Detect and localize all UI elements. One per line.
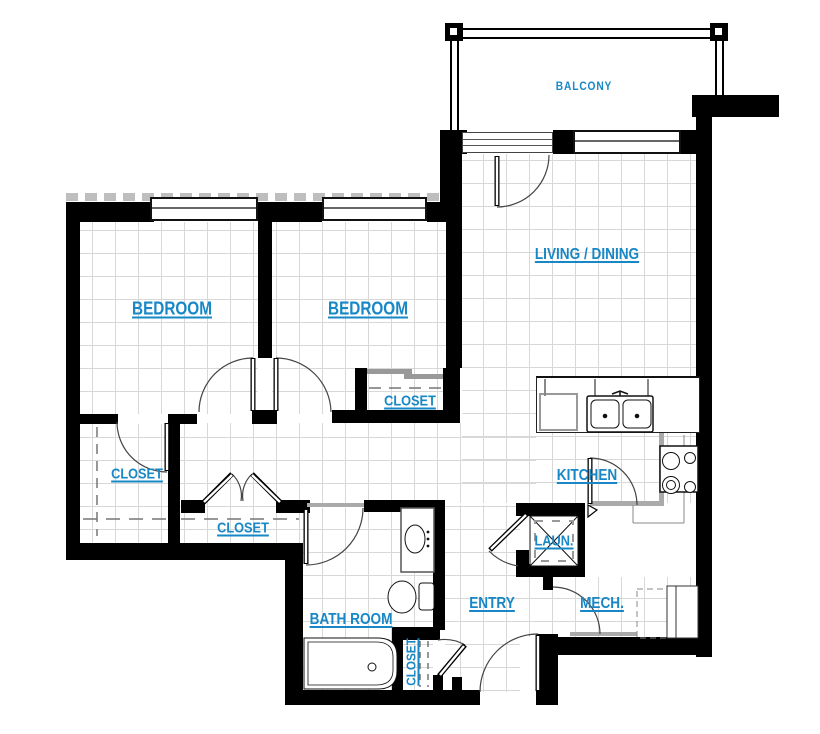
wall-segment [66,543,303,560]
balcony-post-left [445,23,463,41]
wall-segment [516,550,529,577]
wall-segment [258,202,322,222]
label-laundry: LAUN. [535,533,574,550]
wall-segment [258,222,272,358]
wall-segment [553,130,575,154]
label-kitchen: KITCHEN [557,467,617,485]
wall-segment [364,500,445,512]
balcony-railing-right [715,39,724,96]
window-living [573,130,681,154]
balcony-door-opening [462,132,553,153]
window-bedroom2 [322,197,427,221]
floor-plan: BALCONY LIVING / DINING BEDROOM BEDROOM … [0,0,820,734]
balcony-post-right [710,23,728,41]
label-bedroom-2: BEDROOM [328,299,408,320]
balcony-railing-left [450,39,459,132]
wall-segment [543,577,553,590]
label-entry: ENTRY [469,595,515,613]
wall-segment [332,410,460,423]
label-mech: MECH. [580,595,624,613]
wall-segment [285,560,303,692]
label-bedroom-1: BEDROOM [132,299,212,320]
wall-segment [285,690,480,705]
floor-grid-closet-left [80,424,168,543]
window-bedroom1 [150,197,258,221]
wall-segment [252,410,277,424]
wall-segment [433,675,443,692]
wall-segment [681,130,698,154]
wall-segment [392,627,403,692]
wall-segment [433,512,445,630]
door-stop-icon [588,505,597,517]
wall-segment [553,637,712,655]
wall-segment [181,500,205,513]
wall-segment [692,95,779,117]
wall-segment [276,500,310,513]
wall-segment [452,677,462,705]
label-closet-bedroom2: CLOSET [384,393,436,410]
wall-segment [168,414,197,424]
balcony-railing-top [459,28,714,39]
floor-grid-hall [180,423,536,503]
label-balcony: BALCONY [556,79,612,93]
wall-segment [80,414,118,424]
label-closet-entry: CLOSET [404,638,419,685]
wall-segment [446,222,462,368]
label-bathroom: BATH ROOM [310,611,393,629]
wall-segment [66,202,80,560]
label-living-dining: LIVING / DINING [535,246,639,264]
floor-grid-mech [553,577,698,637]
wall-segment [168,424,180,543]
label-closet-left: CLOSET [111,466,163,483]
label-closet-hall: CLOSET [217,520,269,537]
refrigerator-icon [539,393,578,431]
